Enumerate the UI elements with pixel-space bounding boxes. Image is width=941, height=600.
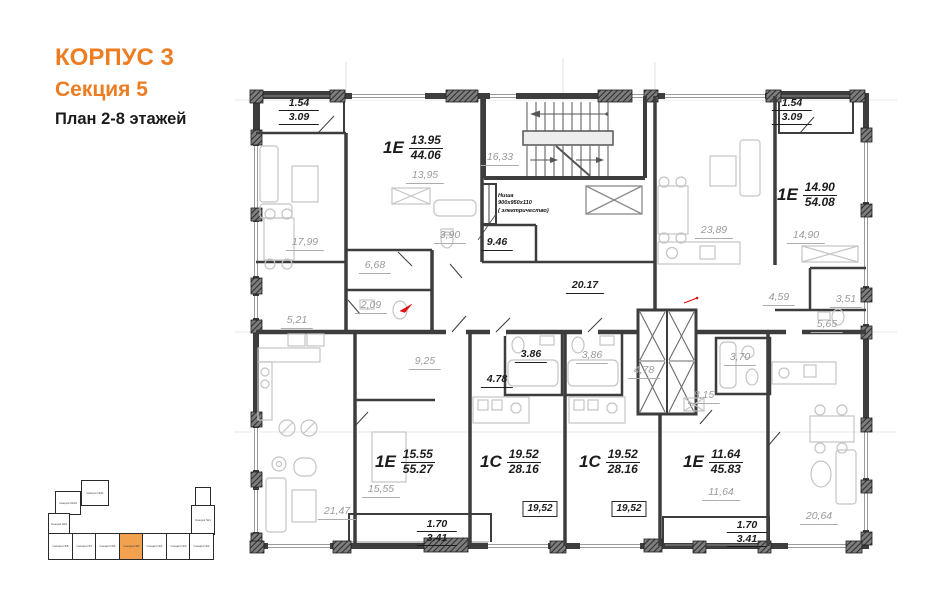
room-area-label: 8,15 [688,389,720,404]
balcony-label-bottom-right: 1.70 3.41 [727,519,767,547]
page-title: План 2-8 этажей [55,110,186,129]
minimap-section: Секция №6 [95,533,120,560]
apartment-label-studio-1: 1С 19.5228.16 [480,448,541,477]
minimap-section: Секция №8 [48,533,73,560]
room-area-label: 3.86 [515,348,547,363]
building-title: КОРПУС 3 [55,44,174,72]
minimap-section: Секция №3 [166,533,191,560]
room-area-label: 4,78 [628,364,660,379]
room-area-label: 15,55 [362,483,400,498]
minimap-section: Секция №2 [189,533,214,560]
apartment-label-top-right: 1Е 14.9054.08 [777,181,837,210]
room-area-label: 5,21 [281,314,313,329]
building-locator-minimap: Секция №11 Секция №10 Секция №9 Секция №… [45,477,221,563]
niche-note: Ниша 900х950х110 ( электричество) [498,193,549,215]
room-area-label: 3,70 [724,351,756,366]
room-area-label: 5,65 [811,318,843,333]
minimap-section: Секция №1 [191,505,215,535]
room-area-label: 4,59 [763,291,795,306]
room-area-label: 20,64 [800,510,838,525]
studio-room-label: 19,52 [611,501,646,517]
room-area-label: 17,99 [286,236,324,251]
room-area-label: 2,09 [355,299,387,314]
minimap-section: Секция №10 [55,491,81,515]
studio-room-label: 19,52 [522,501,557,517]
shaft-box [586,186,642,214]
apartment-label-bottom-right: 1Е 11.6445.83 [683,448,743,477]
apartment-label-bottom-left: 1Е 15.5555.27 [375,448,435,477]
room-area-label: 3,86 [576,349,608,364]
minimap-section: Секция №4 [142,533,167,560]
stairs [523,102,613,176]
minimap-section: Секция №11 [81,480,109,506]
room-area-label: 14,90 [787,229,825,244]
apartment-label-studio-2: 1С 19.5228.16 [579,448,640,477]
minimap-section-highlighted: Секция №5 [119,533,144,560]
apartment-label-top-left: 1Е 13.9544.06 [383,134,443,163]
room-area-label: 3,51 [830,293,862,308]
minimap-section [195,487,211,507]
room-area-label: 13,95 [406,169,444,184]
interior-walls [256,96,866,546]
room-area-label: 6,68 [359,259,391,274]
section-title: Секция 5 [55,78,148,102]
room-area-label: 21,47 [318,505,356,520]
wall-piers [250,90,872,553]
balcony-label-top-right: 1.54 3.09 [772,97,812,125]
room-area-label: 9,25 [409,355,441,370]
room-area-label: 11,64 [702,486,740,501]
room-area-label: 3,90 [434,229,466,244]
balcony-label-bottom-left: 1.70 3.41 [417,518,457,546]
room-area-label: 23,89 [695,224,733,239]
floor-plan-page: КОРПУС 3 Секция 5 План 2-8 этажей 1Е 13.… [0,0,941,600]
minimap-section: Секция №7 [72,533,97,560]
balcony-label-top-left: 1.54 3.09 [279,97,319,125]
minimap-section: Секция №9 [48,513,70,535]
lobby-area-label: 9.46 [481,236,513,251]
room-area-label: 16,33 [481,151,519,166]
corridor-area-label: 20.17 [566,279,604,294]
room-area-label: 4.78 [481,373,513,388]
